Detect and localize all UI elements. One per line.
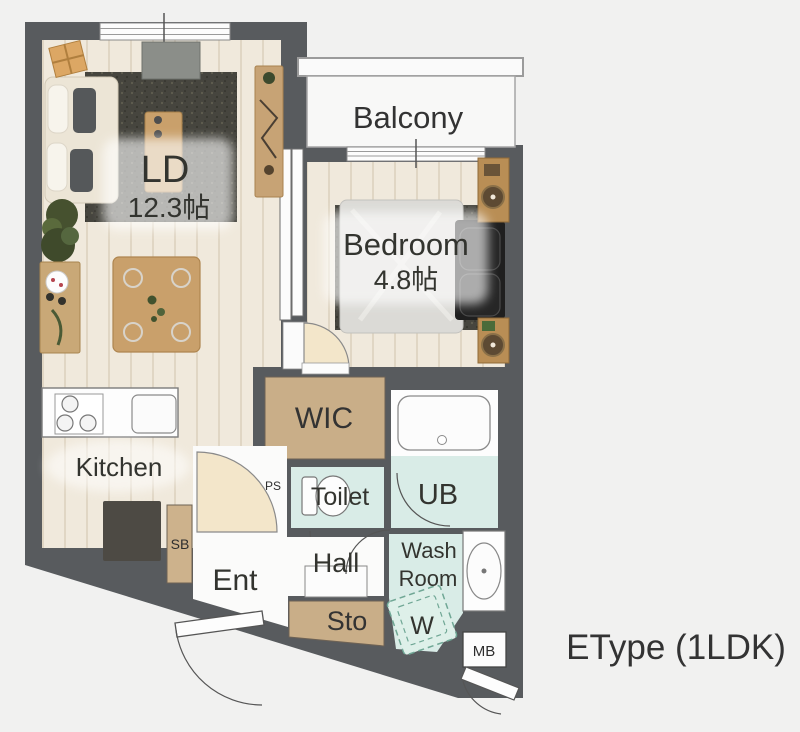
nightstand-top xyxy=(478,158,509,222)
storage-label: Sto xyxy=(327,606,368,636)
tv xyxy=(142,42,200,79)
balcony-railing xyxy=(298,58,523,76)
tv-board xyxy=(255,66,283,197)
nightstand-bottom xyxy=(478,318,509,363)
wic-label: WIC xyxy=(295,402,353,435)
ub-label: UB xyxy=(418,479,458,511)
kitchen-sink xyxy=(132,395,176,433)
kitchen-label: Kitchen xyxy=(76,452,163,482)
refrigerator-space xyxy=(103,501,161,561)
balcony-label: Balcony xyxy=(353,100,464,135)
kitchen-counter xyxy=(42,388,178,437)
meter-box-label: MB xyxy=(473,643,496,660)
hall-label: Hall xyxy=(313,548,360,578)
plan-type-label: EType (1LDK) xyxy=(566,628,786,667)
ld-size-label: 12.3帖 xyxy=(128,192,211,223)
bedroom-label: Bedroom xyxy=(343,227,469,262)
flower-table xyxy=(40,262,80,353)
floor-plan-page: Balcony LD 12.3帖 Bedroom 4.8帖 Kitchen WI… xyxy=(0,0,800,732)
bedroom-size-label: 4.8帖 xyxy=(374,265,439,295)
pipe-space-label: PS xyxy=(265,479,281,493)
washroom-label-line1: Wash xyxy=(401,538,456,563)
entrance-label: Ent xyxy=(212,564,258,597)
dining-set xyxy=(113,257,200,352)
tub-drain xyxy=(438,436,447,445)
ld-label: LD xyxy=(141,149,190,191)
toilet-label: Toilet xyxy=(311,483,369,511)
floor-plan: Balcony LD 12.3帖 Bedroom 4.8帖 Kitchen WI… xyxy=(0,0,800,732)
shoe-box-label: SB xyxy=(171,536,190,552)
washbasin-drain xyxy=(482,569,487,574)
washer-label: W xyxy=(410,612,434,640)
washroom-label-line2: Room xyxy=(399,566,458,591)
